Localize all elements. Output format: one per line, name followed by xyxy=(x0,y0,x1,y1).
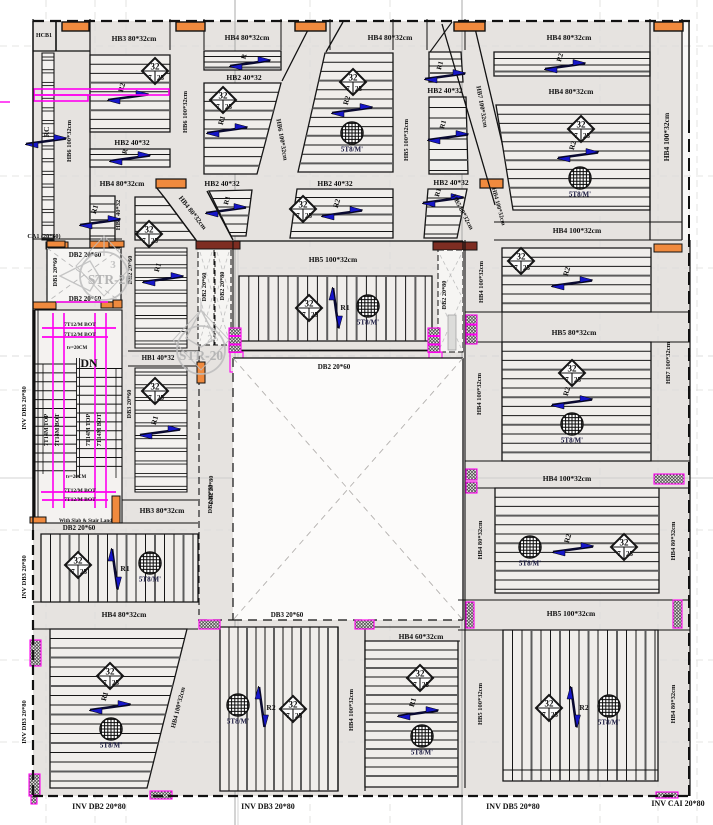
svg-text:7T12/M BOT: 7T12/M BOT xyxy=(64,488,96,494)
svg-text:HB4 80*32cm: HB4 80*32cm xyxy=(477,520,484,559)
svg-text:INV DB3 20*80: INV DB3 20*80 xyxy=(21,700,28,744)
svg-text:HB4 80*32cm: HB4 80*32cm xyxy=(547,33,593,42)
svg-text:HB4 100*32cm: HB4 100*32cm xyxy=(348,688,355,731)
svg-text:HB2 40*32: HB2 40*32 xyxy=(427,86,462,95)
svg-text:7T12/M BOT: 7T12/M BOT xyxy=(64,322,96,328)
svg-text:RC: RC xyxy=(42,127,51,138)
svg-text:HB5 100*32cm: HB5 100*32cm xyxy=(309,255,358,264)
svg-text:HB2 40*32: HB2 40*32 xyxy=(317,179,352,188)
svg-text:HB3 80*32cm: HB3 80*32cm xyxy=(112,34,158,43)
svg-text:HB4 100*32cm: HB4 100*32cm xyxy=(662,112,671,161)
svg-text:HB5 100*32cm: HB5 100*32cm xyxy=(403,118,410,161)
svg-text:HB5 80*32cm: HB5 80*32cm xyxy=(552,328,598,337)
svg-text:INV CAI 20*80: INV CAI 20*80 xyxy=(651,799,704,808)
svg-text:HB4 100*32cm: HB4 100*32cm xyxy=(478,260,485,303)
svg-text:HB5 100*32cm: HB5 100*32cm xyxy=(547,609,596,618)
svg-text:INV DB3 20*80: INV DB3 20*80 xyxy=(21,386,28,430)
svg-text:STR-20: STR-20 xyxy=(88,272,133,287)
svg-text:7T14M BOT: 7T14M BOT xyxy=(97,414,103,447)
svg-text:tv=20CM: tv=20CM xyxy=(66,475,87,480)
svg-text:INV DB3 20*80: INV DB3 20*80 xyxy=(21,555,28,599)
svg-text:HB4 80*32cm: HB4 80*32cm xyxy=(670,521,677,560)
svg-text:7T12/M BOT: 7T12/M BOT xyxy=(64,497,96,503)
svg-text:HB6 100*32cm: HB6 100*32cm xyxy=(66,119,73,162)
svg-text:INV DB3 20*80: INV DB3 20*80 xyxy=(241,802,295,811)
svg-text:HB4 80*32cm: HB4 80*32cm xyxy=(225,33,271,42)
svg-text:R1: R1 xyxy=(340,303,349,312)
svg-text:DB2 20*80: DB2 20*80 xyxy=(208,476,215,505)
svg-text:HB2 40*32: HB2 40*32 xyxy=(433,178,468,187)
svg-text:HB4 80*32cm: HB4 80*32cm xyxy=(670,684,677,723)
svg-text:STR-20: STR-20 xyxy=(179,348,224,363)
svg-text:DN: DN xyxy=(80,356,98,370)
svg-text:HB2 40*32: HB2 40*32 xyxy=(226,73,261,82)
svg-text:tv=20CM: tv=20CM xyxy=(67,346,88,351)
svg-text:HB6 100*32cm: HB6 100*32cm xyxy=(182,90,189,133)
svg-text:DB3 20*60: DB3 20*60 xyxy=(271,611,304,619)
svg-text:HB4 80*32cm: HB4 80*32cm xyxy=(549,87,595,96)
svg-text:HB3 80*32cm: HB3 80*32cm xyxy=(140,506,186,515)
svg-text:R2: R2 xyxy=(579,703,588,712)
svg-text:R2: R2 xyxy=(266,703,275,712)
svg-text:HB4 60*32cm: HB4 60*32cm xyxy=(399,632,445,641)
svg-text:7T12/M BOT: 7T12/M BOT xyxy=(64,332,96,338)
svg-text:DB2 20*60: DB2 20*60 xyxy=(63,524,96,532)
svg-text:DB2 20*60: DB2 20*60 xyxy=(318,363,351,371)
svg-text:DB3 20*60: DB3 20*60 xyxy=(126,390,133,419)
svg-text:7T14M TOP: 7T14M TOP xyxy=(86,414,92,447)
svg-text:DB2 20*80: DB2 20*80 xyxy=(219,272,226,301)
svg-text:HB4 80*32cm: HB4 80*32cm xyxy=(368,33,414,42)
svg-text:HB4 80*32cm: HB4 80*32cm xyxy=(102,610,148,619)
svg-text:2: 2 xyxy=(207,333,213,345)
svg-text:HB4 100*32cm: HB4 100*32cm xyxy=(543,474,592,483)
svg-text:HCB1: HCB1 xyxy=(36,33,52,39)
svg-text:DB2 20*60: DB2 20*60 xyxy=(201,273,208,302)
svg-text:3: 3 xyxy=(110,259,116,271)
svg-text:HB1 40*32: HB1 40*32 xyxy=(142,354,175,362)
svg-text:HB2 40*32: HB2 40*32 xyxy=(114,138,149,147)
svg-text:HB4 100*32cm: HB4 100*32cm xyxy=(476,372,483,415)
svg-text:INV DB5 20*80: INV DB5 20*80 xyxy=(486,802,540,811)
svg-text:DB1 20*60: DB1 20*60 xyxy=(52,258,59,287)
svg-text:HB4 80*32cm: HB4 80*32cm xyxy=(100,179,146,188)
svg-text:R1: R1 xyxy=(120,564,129,573)
svg-text:HB2 40*32: HB2 40*32 xyxy=(204,179,239,188)
svg-text:7T14M TOP: 7T14M TOP xyxy=(44,414,50,447)
svg-text:HB4 100*32cm: HB4 100*32cm xyxy=(553,226,602,235)
svg-text:HB7 100*32cm: HB7 100*32cm xyxy=(665,341,672,384)
svg-text:HB5 100*32cm: HB5 100*32cm xyxy=(477,682,484,725)
svg-text:DB2 20*80: DB2 20*80 xyxy=(441,281,448,310)
svg-text:HB2 40*32: HB2 40*32 xyxy=(115,200,122,231)
svg-text:INV DB2 20*80: INV DB2 20*80 xyxy=(72,802,126,811)
svg-text:7T14M BOT: 7T14M BOT xyxy=(55,414,61,447)
